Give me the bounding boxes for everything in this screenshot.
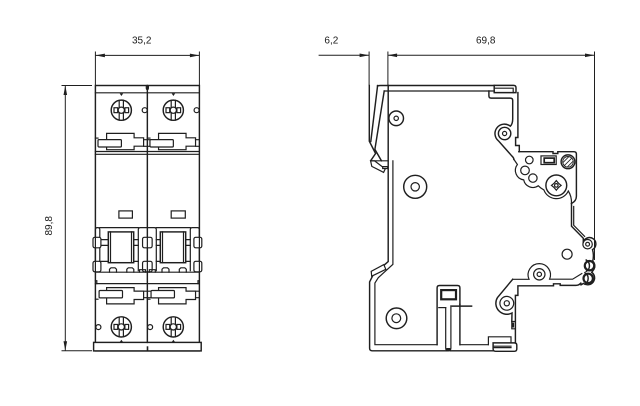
svg-text:89,8: 89,8 xyxy=(44,216,55,236)
svg-text:6,2: 6,2 xyxy=(324,36,338,47)
svg-text:35,2: 35,2 xyxy=(132,36,152,47)
svg-text:69,8: 69,8 xyxy=(476,36,496,47)
